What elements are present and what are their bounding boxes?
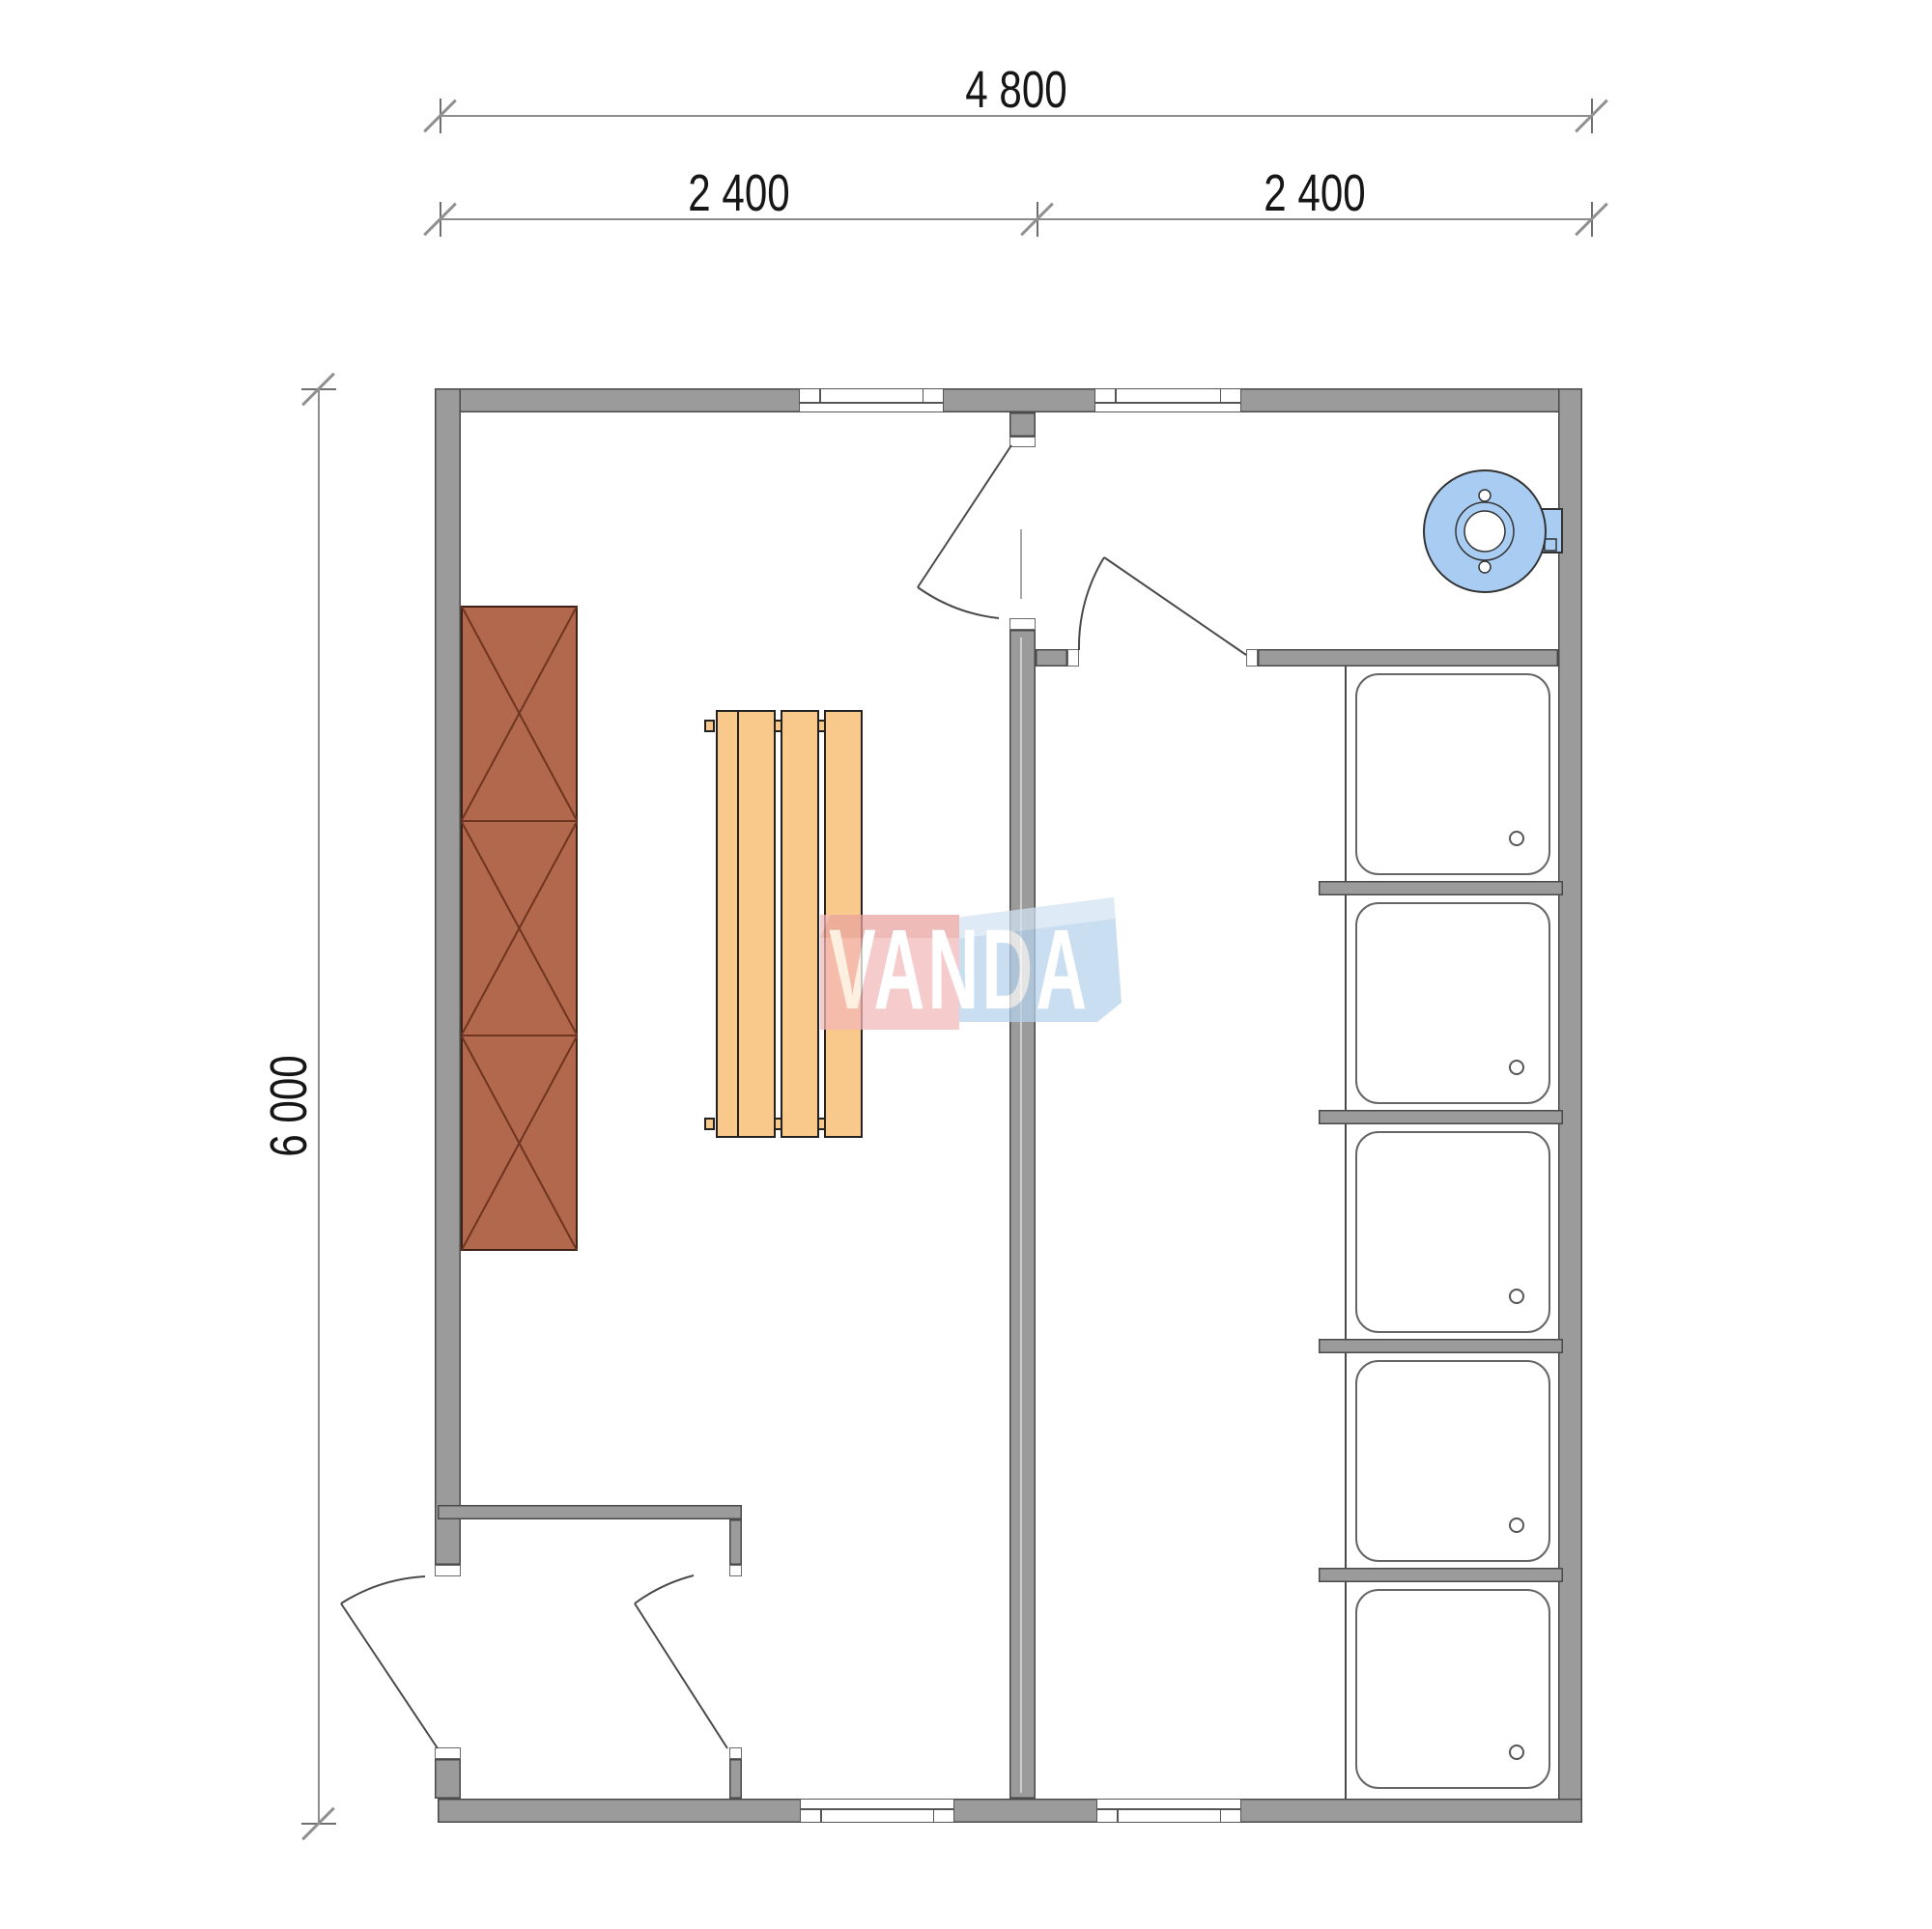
dim-span-right-label: 2 400 (1264, 163, 1365, 223)
wall-left-entry-stub (435, 1759, 461, 1799)
wall-central-main (1009, 630, 1036, 1799)
door-jamb (729, 1565, 742, 1576)
shower-partition-4 (1319, 1568, 1563, 1582)
shower-drain-icon (1509, 1518, 1524, 1533)
window-top-left (799, 388, 944, 412)
door-jamb (1067, 649, 1079, 667)
cabinet-icon (461, 606, 578, 1251)
water-heater-icon (1424, 470, 1562, 592)
door-jamb (1009, 618, 1036, 630)
wall-vestibule-right (729, 1519, 742, 1565)
bench-foot (704, 720, 715, 732)
wall-left (435, 388, 461, 1565)
door-jamb (1246, 649, 1258, 667)
watermark-logo: VANDA (816, 894, 1135, 1038)
shower-partition-3 (1319, 1339, 1563, 1353)
dim-total-height-label: 6 000 (259, 1055, 319, 1156)
shower-drain-icon (1509, 1745, 1524, 1760)
door-jamb (729, 1747, 742, 1759)
shower-tray-icon (1355, 1589, 1550, 1789)
wall-top (435, 388, 1582, 412)
wall-right (1558, 388, 1582, 1823)
bench-slat (781, 710, 819, 1138)
door-swing-icon (918, 445, 1021, 618)
door-swing-icon (341, 1576, 438, 1748)
door-jamb (1009, 437, 1036, 447)
wall-bottom (438, 1799, 1582, 1823)
floor-plan-canvas: 4 800 2 400 2 400 6 000 (0, 0, 1932, 1929)
shower-tray-icon (1355, 673, 1550, 875)
shower-front-line (1345, 667, 1347, 1799)
dim-line (440, 218, 1592, 220)
wall-vestibule-right-stub (729, 1759, 742, 1799)
window-bottom-left (800, 1799, 954, 1823)
wall-boilerroom-left-stub (1036, 649, 1067, 667)
door-jamb (435, 1747, 461, 1759)
wall-central-seam (1020, 638, 1022, 1793)
shower-drain-icon (1509, 1289, 1524, 1304)
bench-slat-divider (737, 712, 739, 1136)
shower-drain-icon (1509, 831, 1524, 846)
window-top-right (1094, 388, 1241, 412)
wall-central-upper (1009, 412, 1036, 437)
shower-tray-icon (1355, 1131, 1550, 1333)
shower-drain-icon (1509, 1060, 1524, 1075)
dim-span-left-label: 2 400 (688, 163, 789, 223)
shower-partition-2 (1319, 1110, 1563, 1124)
door-swing-icon (635, 1575, 727, 1748)
shower-partition-1 (1319, 881, 1563, 895)
shower-tray-icon (1355, 1360, 1550, 1562)
window-bottom-right (1096, 1799, 1241, 1823)
door-swing-icon (1079, 557, 1246, 655)
wall-boilerroom-right (1258, 649, 1558, 667)
shower-tray-icon (1355, 902, 1550, 1104)
bench-foot (704, 1118, 715, 1130)
door-jamb (435, 1565, 461, 1576)
wall-vestibule-top (438, 1505, 742, 1519)
watermark-text: VANDA (829, 913, 1090, 1027)
dim-total-width-label: 4 800 (965, 60, 1066, 120)
bench-icon (716, 710, 776, 1138)
